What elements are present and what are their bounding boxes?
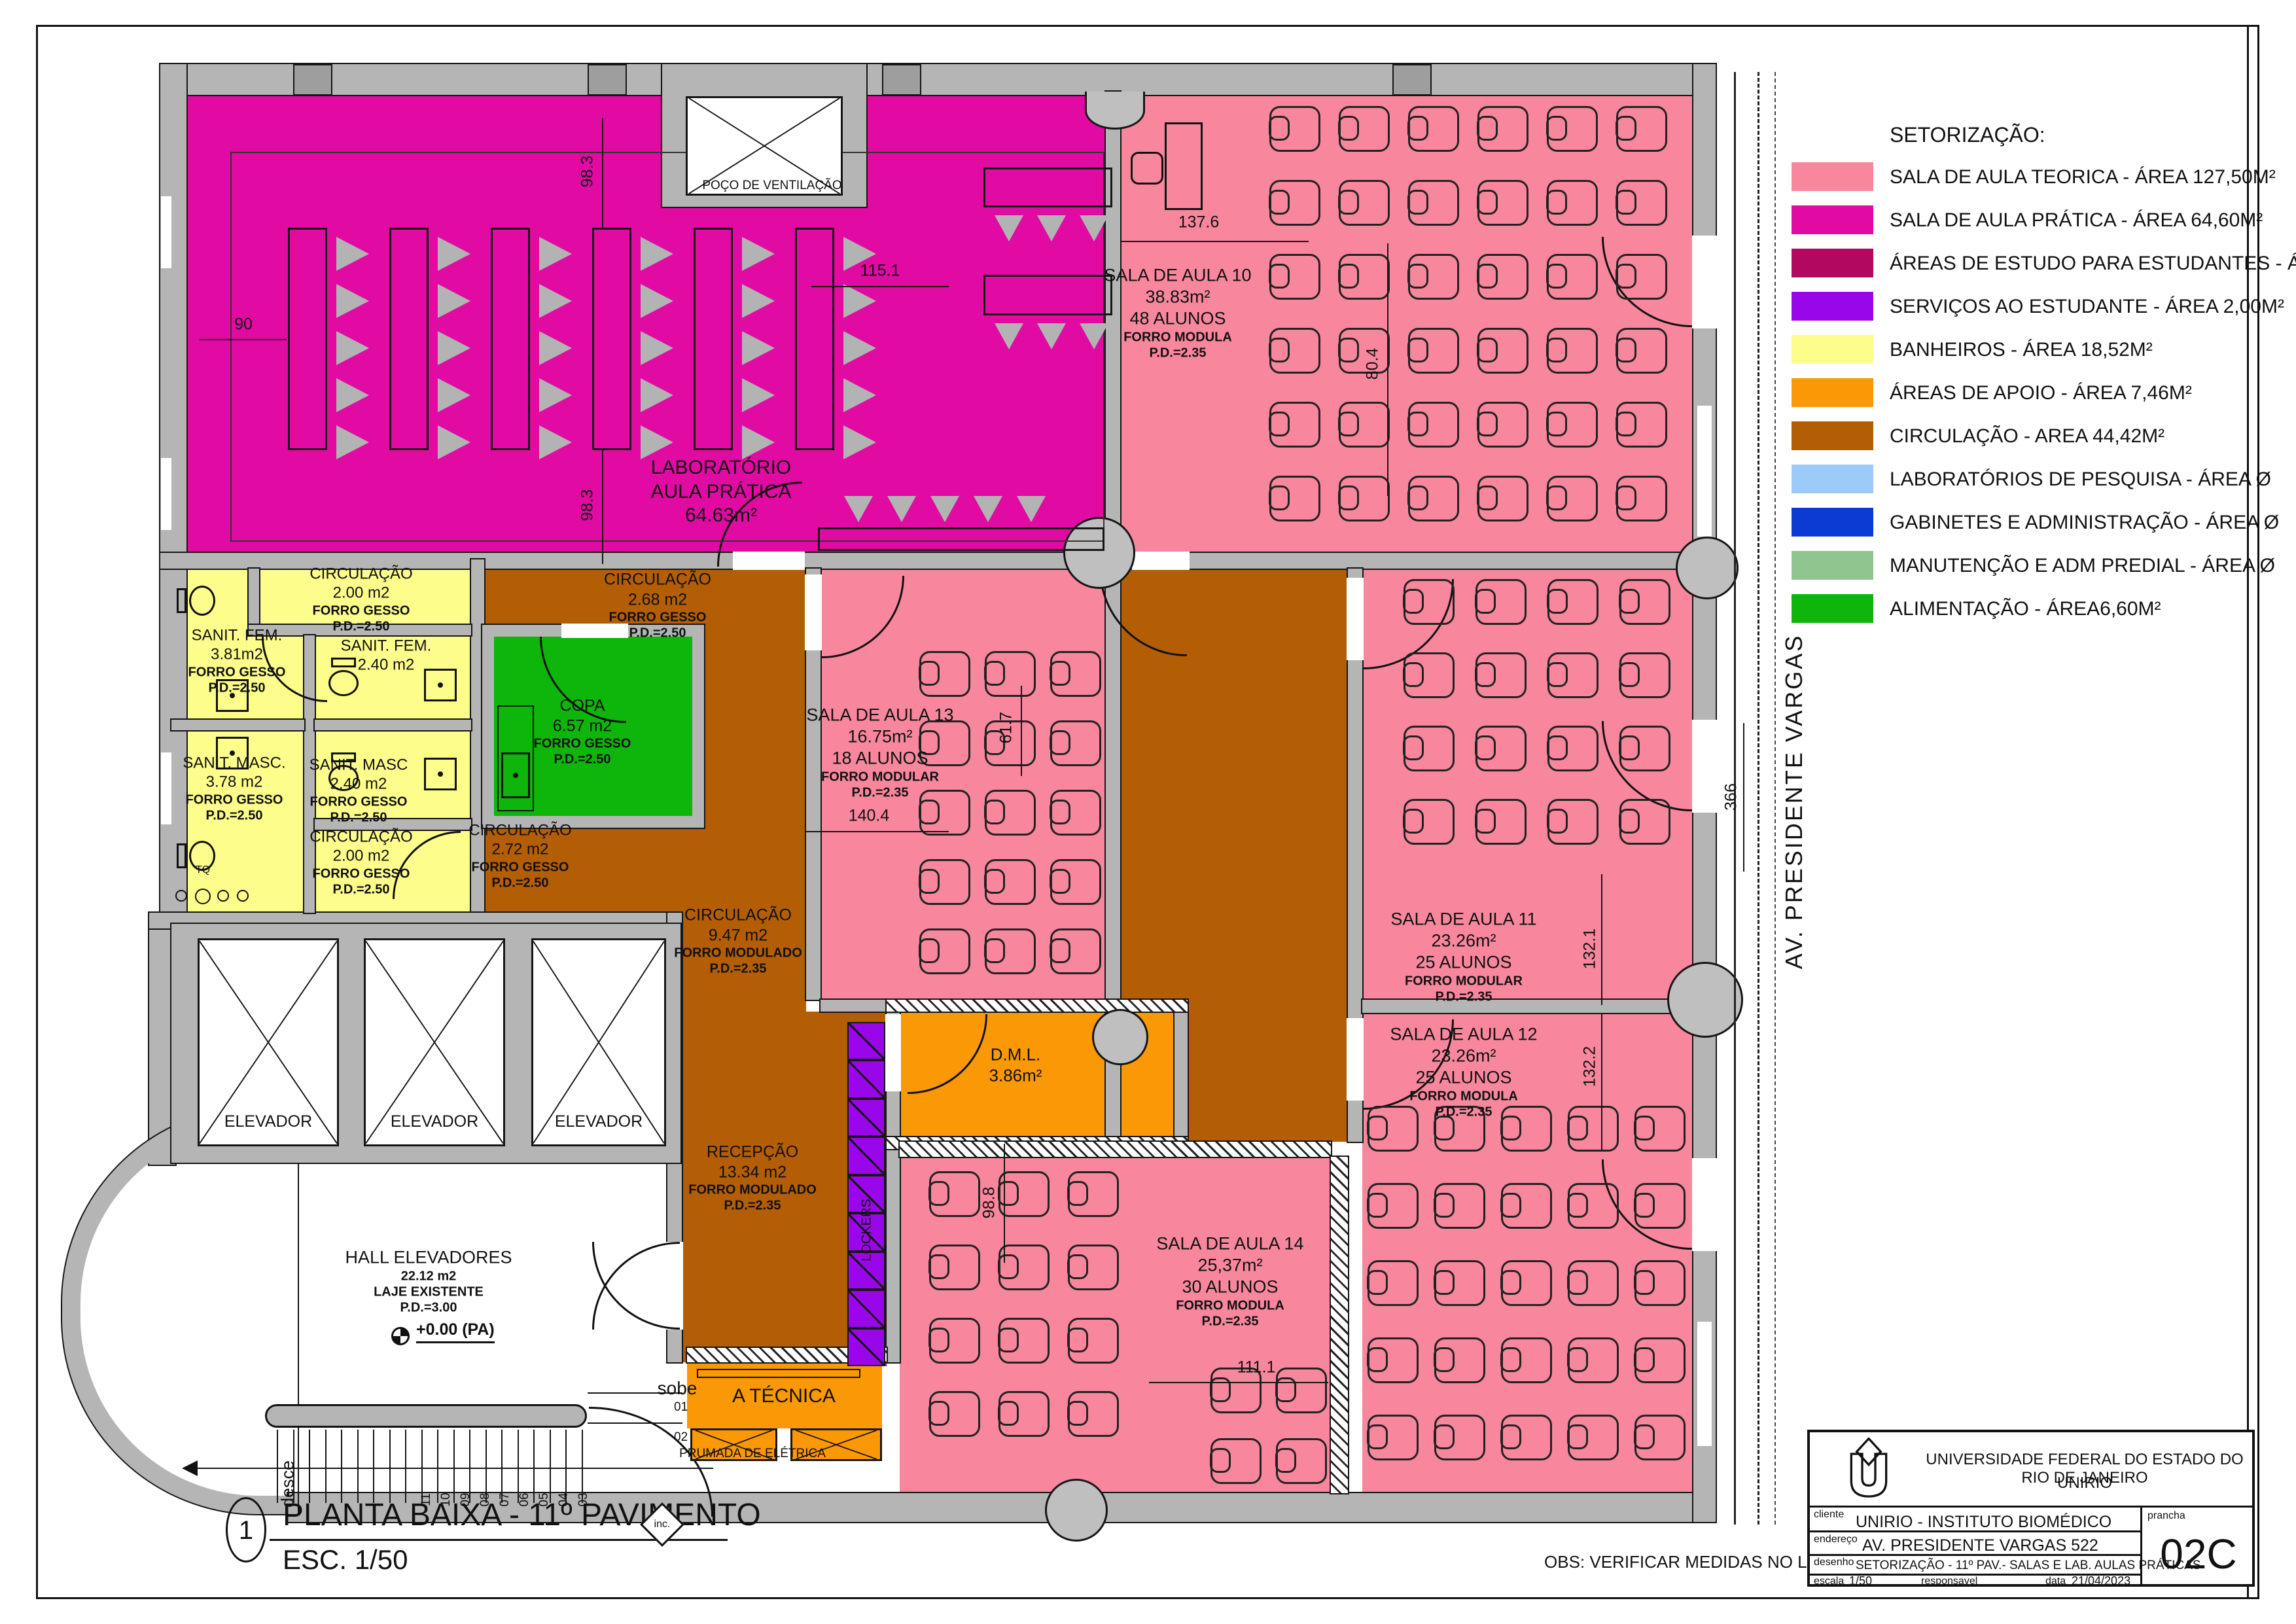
chair-seat bbox=[1338, 264, 1359, 289]
room-label-subline: P.D.=2.35 bbox=[674, 961, 802, 977]
room-label-subline: 22.12 m2 bbox=[345, 1268, 512, 1284]
stool-triangle bbox=[539, 237, 572, 271]
level-label: +0.00 (PA) bbox=[416, 1320, 495, 1343]
endereco-label: endereço bbox=[1814, 1534, 1858, 1545]
chair-seat bbox=[1477, 190, 1498, 215]
room-label-subline: FORRO MODULA bbox=[1390, 1088, 1537, 1104]
chair-seat bbox=[1367, 1347, 1388, 1372]
room-label-subline: FORRO GESSO bbox=[468, 859, 571, 875]
sala10-chairs bbox=[1477, 106, 1528, 152]
chair-seat bbox=[1567, 1116, 1588, 1140]
door-gap-dml bbox=[885, 1014, 901, 1091]
chair-seat bbox=[1546, 264, 1567, 289]
room-label-line: RECEPÇÃO bbox=[688, 1142, 817, 1163]
chair-seat bbox=[1403, 662, 1424, 687]
chair-seat bbox=[1338, 116, 1359, 141]
sala12-chairs bbox=[1501, 1183, 1552, 1229]
legend: SETORIZAÇÃO: SALA DE AULA TEORICA - ÁREA… bbox=[1792, 118, 2250, 661]
left-window bbox=[161, 458, 171, 530]
door-gap-sala13 bbox=[805, 574, 822, 650]
column-block bbox=[294, 65, 331, 94]
stool-triangle bbox=[1080, 215, 1108, 241]
poco-label: POÇO DE VENTILAÇÃO bbox=[702, 179, 841, 193]
room-label-line: CIRCULAÇÃO bbox=[468, 821, 571, 840]
sala12-chairs bbox=[1501, 1260, 1552, 1306]
legend-swatch bbox=[1792, 508, 1873, 537]
locker-box bbox=[847, 1290, 885, 1328]
sala10-chairs bbox=[1408, 328, 1459, 374]
legend-swatch bbox=[1792, 205, 1873, 234]
sala14-chairs-a bbox=[929, 1391, 980, 1437]
dim-line bbox=[1149, 1382, 1328, 1383]
sala11-chairs bbox=[1547, 726, 1598, 771]
sala10-chairs bbox=[1547, 476, 1598, 521]
room-label-subline: FORRO MODULADO bbox=[674, 945, 802, 961]
stool-triangle bbox=[742, 425, 775, 459]
stair-step-number: 02 bbox=[674, 1430, 688, 1445]
elevator-label: ELEVADOR bbox=[364, 1112, 505, 1131]
room-label-sala12: SALA DE AULA 1223.26m²25 ALUNOSFORRO MOD… bbox=[1390, 1024, 1537, 1120]
room-label-circ947: CIRCULAÇÃO9.47 m2FORRO MODULADOP.D.=2.35 bbox=[674, 906, 802, 977]
chair-seat bbox=[1616, 412, 1636, 436]
chair-seat bbox=[928, 1401, 949, 1426]
stair-tread bbox=[373, 1430, 374, 1503]
stool-triangle bbox=[844, 496, 873, 522]
room-label-subline: FORRO GESSO bbox=[309, 603, 412, 618]
room-label-hall: HALL ELEVADORES22.12 m2LAJE EXISTENTEP.D… bbox=[345, 1247, 512, 1316]
room-label-subline: P.D.=2.50 bbox=[188, 680, 286, 696]
sala12-chairs bbox=[1368, 1260, 1419, 1306]
chair-seat bbox=[1269, 338, 1290, 362]
dim-line bbox=[200, 339, 287, 340]
sala14-chairs-a bbox=[1068, 1171, 1119, 1217]
room-label-sala14: SALA DE AULA 1425,37m²30 ALUNOSFORRO MOD… bbox=[1156, 1233, 1303, 1330]
room-label-line: SALA DE AULA 10 bbox=[1104, 265, 1251, 287]
chair-seat bbox=[1547, 735, 1568, 760]
sala11-chairs bbox=[1404, 579, 1455, 625]
column-half-round bbox=[1085, 92, 1145, 130]
sala12-chairs bbox=[1501, 1337, 1552, 1383]
wall-dml-right bbox=[1174, 1012, 1188, 1137]
stool-triangle bbox=[843, 331, 876, 365]
room-label-line: 2.68 m2 bbox=[604, 590, 711, 610]
sala13-chairs bbox=[1050, 790, 1101, 836]
escala-label: escala bbox=[1814, 1576, 1844, 1587]
stair-tread bbox=[518, 1430, 519, 1503]
room-label-atecnica: A TÉCNICA bbox=[732, 1385, 836, 1407]
stair-step-number: 01 bbox=[674, 1400, 688, 1415]
chair-seat bbox=[1407, 116, 1428, 141]
legend-label: SERVIÇOS AO ESTUDANTE - ÁREA 2,00M² bbox=[1890, 296, 2284, 318]
chair-seat bbox=[1477, 412, 1498, 436]
legend-swatch bbox=[1792, 594, 1873, 623]
sala12-chairs bbox=[1434, 1260, 1485, 1306]
room-label-line: SANIT. MASC bbox=[309, 756, 408, 775]
room-label-line: 9.47 m2 bbox=[674, 925, 802, 945]
wall-below-sala10 bbox=[1120, 553, 1693, 569]
stair-tread bbox=[405, 1430, 406, 1503]
chair-seat bbox=[1475, 735, 1496, 760]
room-label-subline: P.D.=2.50 bbox=[468, 875, 571, 891]
shape bbox=[1857, 1439, 1881, 1465]
chair-seat bbox=[1367, 1193, 1388, 1218]
chair-seat bbox=[1367, 1270, 1388, 1295]
chair-seat bbox=[1567, 1424, 1588, 1449]
wall-balcony-curve bbox=[62, 1107, 298, 1514]
chair-seat bbox=[928, 1328, 949, 1352]
sala10-chairs bbox=[1547, 180, 1598, 226]
chair-seat bbox=[1067, 1181, 1088, 1206]
legend-label: SALA DE AULA PRÁTICA - ÁREA 64,60M² bbox=[1890, 209, 2263, 232]
room-label-line: CIRCULAÇÃO bbox=[674, 906, 802, 926]
stair-tread bbox=[421, 1430, 423, 1503]
sala10-chairs bbox=[1547, 402, 1598, 448]
chair-seat bbox=[1500, 1424, 1521, 1449]
chair-seat bbox=[1477, 485, 1498, 510]
stool-triangle bbox=[641, 425, 673, 459]
room-label-dml: D.M.L.3.86m² bbox=[989, 1044, 1042, 1086]
elevator-label: ELEVADOR bbox=[531, 1112, 666, 1131]
drain-circle bbox=[195, 889, 211, 904]
stair-tread bbox=[325, 1430, 327, 1503]
room-label-subline: P.D.=2.35 bbox=[688, 1198, 817, 1214]
sala10-chairs bbox=[1339, 106, 1390, 152]
legend-label: ALIMENTAÇÃO - ÁREA6,60M² bbox=[1890, 598, 2161, 620]
sala14-chairs-a bbox=[998, 1171, 1050, 1217]
chair-seat bbox=[1619, 735, 1640, 760]
facade-door-sala10 bbox=[1692, 236, 1717, 328]
chair-seat bbox=[1050, 938, 1070, 963]
chair-seat bbox=[919, 661, 940, 686]
prancha-label: prancha bbox=[2147, 1510, 2185, 1522]
sala10-chairs bbox=[1339, 180, 1390, 226]
sala10-chairs bbox=[1339, 254, 1390, 300]
room-label-line: HALL ELEVADORES bbox=[345, 1247, 512, 1269]
locker-box bbox=[847, 1137, 885, 1174]
escala-value: 1/50 bbox=[1849, 1574, 1872, 1588]
shape bbox=[177, 843, 186, 868]
dim-label: 80.4 bbox=[1364, 348, 1383, 380]
sala14-chairs-b bbox=[1276, 1438, 1327, 1484]
chair-seat bbox=[1634, 1270, 1655, 1295]
stool-triangle bbox=[843, 425, 876, 459]
sala11-chairs bbox=[1619, 726, 1670, 771]
stool-triangle bbox=[438, 331, 470, 365]
chair-seat bbox=[984, 800, 1005, 824]
room-label-sanitfem1: SANIT. FEM.3.81m2FORRO GESSOP.D.=2.50 bbox=[188, 626, 286, 696]
sala14-chairs-a bbox=[998, 1318, 1050, 1364]
shape bbox=[1829, 1438, 1908, 1503]
room-label-sala13: SALA DE AULA 1316.75m²18 ALUNOSFORRO MOD… bbox=[806, 705, 953, 801]
chair-seat bbox=[1407, 485, 1428, 510]
street-line-dash-1 bbox=[1757, 72, 1759, 1525]
column-block bbox=[1394, 65, 1430, 94]
locker-box bbox=[847, 1099, 885, 1137]
sala12-chairs bbox=[1568, 1183, 1619, 1229]
chair-seat bbox=[1050, 661, 1070, 686]
stool-triangle bbox=[539, 331, 572, 365]
room-label-line: 3.86m² bbox=[989, 1065, 1042, 1086]
sala10-chairs bbox=[1477, 328, 1528, 374]
dim-label: 132.2 bbox=[1581, 1046, 1600, 1087]
drain-circle bbox=[237, 890, 249, 902]
sala10-chairs bbox=[1339, 402, 1390, 448]
dim-label: 111.1 bbox=[1237, 1358, 1276, 1377]
room-label-line: SALA DE AULA 14 bbox=[1156, 1233, 1303, 1255]
room-label-circ200b: CIRCULAÇÃO2.00 m2FORRO GESSOP.D.=2.50 bbox=[309, 828, 412, 898]
column-circle bbox=[1092, 1009, 1148, 1065]
chair-seat bbox=[1338, 190, 1359, 215]
chair-seat bbox=[1050, 730, 1070, 755]
lab-bench bbox=[288, 228, 327, 450]
room-label-copa: COPA6.57 m2FORRO GESSOP.D.=2.50 bbox=[534, 696, 631, 768]
chair-seat bbox=[1634, 1116, 1655, 1140]
chair-seat bbox=[1275, 1377, 1296, 1402]
stool-triangle bbox=[438, 378, 470, 412]
sala12-chairs bbox=[1568, 1415, 1619, 1460]
room-label-sanitmasc2: SANIT. MASC2.40 m2FORRO GESSOP.D.=2.50 bbox=[309, 756, 408, 826]
dim-label: 98.3 bbox=[578, 489, 597, 521]
room-label-line: SALA DE AULA 11 bbox=[1390, 909, 1536, 930]
chair-seat bbox=[984, 661, 1005, 686]
sala11-chairs bbox=[1619, 652, 1670, 698]
sala11-chairs bbox=[1404, 799, 1455, 845]
stool-triangle bbox=[336, 425, 369, 459]
sala12-chairs bbox=[1434, 1337, 1485, 1383]
dim-line bbox=[1122, 241, 1309, 242]
room-label-subline: FORRO GESSO bbox=[183, 792, 285, 807]
legend-label: GABINETES E ADMINISTRAÇÃO - ÁREA Ø bbox=[1890, 512, 2279, 534]
stool-triangle bbox=[641, 378, 673, 412]
sala11-chairs bbox=[1547, 799, 1598, 845]
room-label-subline: P.D.=2.50 bbox=[309, 881, 412, 897]
sala13-chairs bbox=[919, 859, 970, 905]
chair-seat bbox=[1434, 1193, 1455, 1218]
legend-label: MANUTENÇÃO E ADM PREDIAL - ÁREA Ø bbox=[1890, 555, 2275, 577]
stair-tread bbox=[357, 1430, 359, 1503]
sala10-chairs bbox=[1269, 254, 1320, 300]
room-label-subline: P.D.=2.35 bbox=[806, 785, 953, 800]
sala11-chairs bbox=[1475, 799, 1527, 845]
chair-seat bbox=[998, 1328, 1019, 1352]
teacher-desk bbox=[1165, 122, 1203, 210]
stool-triangle bbox=[539, 425, 572, 459]
chair-seat bbox=[1338, 412, 1359, 436]
room-label-line: D.M.L. bbox=[989, 1044, 1042, 1065]
chair-seat bbox=[1547, 589, 1568, 614]
chair-seat bbox=[1067, 1328, 1088, 1352]
sala13-chairs bbox=[1050, 651, 1101, 697]
data-label: data bbox=[2045, 1576, 2066, 1587]
room-label-line: 3.78 m2 bbox=[183, 773, 285, 792]
column-circle bbox=[1667, 962, 1743, 1038]
sala13-chairs bbox=[985, 790, 1036, 836]
chair-seat bbox=[1434, 1270, 1455, 1295]
room-label-subline: P.D.=2.35 bbox=[1104, 345, 1251, 361]
room-label-subline: FORRO MODULAR bbox=[806, 769, 953, 785]
legend-label: ÁREAS DE ESTUDO PARA ESTUDANTES - ÁREA Ø bbox=[1890, 253, 2296, 275]
title-block: UNIVERSIDADE FEDERAL DO ESTADO DO RIO DE… bbox=[1807, 1430, 2255, 1587]
sala13-chairs bbox=[1050, 928, 1101, 974]
dim-line bbox=[1021, 686, 1022, 776]
sala12-chairs bbox=[1568, 1260, 1619, 1306]
street-name: AV. PRESIDENTE VARGAS bbox=[1780, 634, 1808, 969]
sala10-chairs bbox=[1616, 402, 1667, 448]
room-label-sala11: SALA DE AULA 1123.26m²25 ALUNOSFORRO MOD… bbox=[1390, 909, 1536, 1005]
stair-number: 10 bbox=[439, 1492, 453, 1506]
stool-triangle bbox=[438, 284, 470, 318]
sala10-chairs bbox=[1477, 180, 1528, 226]
stair-walkline bbox=[196, 1468, 713, 1469]
room-label-subline: P.D.=2.50 bbox=[604, 626, 711, 641]
chair-seat bbox=[928, 1254, 949, 1279]
sala13-chairs bbox=[1050, 859, 1101, 905]
room-label-circ272: CIRCULAÇÃO2.72 m2FORRO GESSOP.D.=2.50 bbox=[468, 821, 571, 891]
chair-seat bbox=[1619, 589, 1640, 614]
room-label-line: 2.40 m2 bbox=[309, 775, 408, 794]
stool-triangle bbox=[539, 284, 572, 318]
sala14-chairs-b bbox=[1276, 1368, 1327, 1413]
drain-circle bbox=[175, 890, 187, 902]
room-label-subline: LAJE EXISTENTE bbox=[345, 1284, 512, 1299]
legend-label: BANHEIROS - ÁREA 18,52M² bbox=[1890, 339, 2153, 361]
chair-seat bbox=[1500, 1270, 1521, 1295]
legend-rows: SALA DE AULA TEORICA - ÁREA 127,50M²SALA… bbox=[1792, 118, 2250, 661]
wall-top bbox=[160, 64, 1716, 95]
wall-bath-v1 bbox=[249, 569, 259, 634]
stair-tread bbox=[341, 1430, 342, 1503]
legend-swatch bbox=[1792, 421, 1873, 450]
stool-triangle bbox=[641, 284, 673, 318]
chair-seat bbox=[1367, 1424, 1388, 1449]
titleblock-prancha-cell: prancha 02C bbox=[2142, 1506, 2255, 1585]
sala14-chairs-a bbox=[1068, 1244, 1119, 1290]
sala14-chairs-a bbox=[998, 1391, 1050, 1437]
left-window bbox=[161, 752, 171, 824]
facade-door-sala12 bbox=[1692, 1158, 1717, 1251]
lab-bench bbox=[983, 168, 1112, 207]
room-label-line: SANIT. FEM. bbox=[188, 626, 286, 645]
room-label-line: 25,37m² bbox=[1156, 1255, 1303, 1277]
room-label-subline: FORRO GESSO bbox=[604, 610, 711, 626]
room-label-subline: FORRO GESSO bbox=[188, 664, 286, 680]
plan-title-mark: 1 bbox=[226, 1497, 266, 1562]
sala11-chairs bbox=[1404, 726, 1455, 771]
chair-seat bbox=[1269, 412, 1290, 436]
room-label-line: 23.26m² bbox=[1390, 930, 1536, 952]
chair-seat bbox=[1475, 809, 1496, 834]
room-label-subline: FORRO MODULAR bbox=[1390, 973, 1536, 989]
stool-triangle bbox=[742, 237, 775, 271]
chair-seat bbox=[1547, 662, 1568, 687]
lockers-label: LOCKERS bbox=[860, 1199, 875, 1262]
stool-triangle bbox=[930, 496, 959, 522]
stool-triangle bbox=[742, 331, 775, 365]
room-label-sanitmasc1: SANIT. MASC.3.78 m2FORRO GESSOP.D.=2.50 bbox=[183, 754, 285, 824]
chair-seat bbox=[1403, 735, 1424, 760]
stair-number: 03 bbox=[576, 1492, 591, 1506]
locker-box bbox=[847, 1328, 885, 1366]
legend-label: SALA DE AULA TEORICA - ÁREA 127,50M² bbox=[1890, 166, 2276, 188]
chair-seat bbox=[1407, 338, 1428, 362]
sala14-chairs-a bbox=[929, 1244, 980, 1290]
legend-swatch bbox=[1792, 292, 1873, 321]
sala10-chairs bbox=[1616, 476, 1667, 521]
data-value: 21/04/2023 bbox=[2072, 1574, 2130, 1588]
room-label-line: SANIT. FEM. bbox=[341, 637, 432, 656]
dim-line bbox=[1004, 1144, 1005, 1263]
room-label-subline: P.D.=3.00 bbox=[345, 1299, 512, 1315]
stool-triangle bbox=[336, 331, 369, 365]
dim-line bbox=[811, 286, 949, 287]
sala11-chairs bbox=[1547, 652, 1598, 698]
legend-label: ÁREAS DE APOIO - ÁREA 7,46M² bbox=[1890, 382, 2192, 404]
sala14-chairs-a bbox=[1068, 1318, 1119, 1364]
sala11-chairs bbox=[1475, 726, 1527, 771]
room-label-line: 64.63m² bbox=[650, 504, 791, 528]
sala13-chairs bbox=[985, 928, 1036, 974]
stool-triangle bbox=[1037, 323, 1066, 349]
stair-tread bbox=[389, 1430, 391, 1503]
chair-seat bbox=[984, 869, 1005, 894]
stool-triangle bbox=[843, 378, 876, 412]
sala12-chairs bbox=[1634, 1183, 1686, 1229]
chair-seat bbox=[1269, 485, 1290, 510]
stair-number: 06 bbox=[518, 1492, 532, 1506]
dim-label: 137.6 bbox=[1178, 213, 1220, 232]
wall-bath-h3 bbox=[315, 720, 471, 730]
legend-swatch bbox=[1792, 335, 1873, 364]
legend-label: LABORATÓRIOS DE PESQUISA - ÁREA Ø bbox=[1890, 468, 2271, 491]
dim-label: 115.1 bbox=[860, 262, 900, 281]
chair-seat bbox=[919, 869, 940, 894]
stool-triangle bbox=[438, 425, 470, 459]
chair-seat bbox=[1634, 1193, 1655, 1218]
sala11-chairs bbox=[1404, 652, 1455, 698]
sala12-chairs bbox=[1568, 1106, 1619, 1152]
room-label-subline: P.D.=2.50 bbox=[183, 807, 285, 823]
stool-triangle bbox=[995, 215, 1023, 241]
wall-sala14-top-hatch bbox=[900, 1142, 1331, 1157]
stool-triangle bbox=[1037, 215, 1066, 241]
responsavel-label: responsavel bbox=[1921, 1576, 1977, 1587]
titleblock-university-short: UNIRIO bbox=[1915, 1474, 2255, 1492]
room-label-line: 2.00 m2 bbox=[309, 847, 412, 866]
room-label-line: LABORATÓRIO bbox=[650, 456, 791, 480]
room-label-sala10: SALA DE AULA 1038.83m²48 ALUNOSFORRO MOD… bbox=[1104, 265, 1251, 361]
room-label-line: AULA PRÁTICA bbox=[650, 480, 791, 504]
facade-window bbox=[1697, 406, 1712, 537]
sala10-chairs bbox=[1616, 254, 1667, 300]
sala11-chairs bbox=[1619, 579, 1670, 625]
sala13-chairs bbox=[1050, 720, 1101, 766]
dim-line bbox=[806, 831, 949, 832]
chair-seat bbox=[1567, 1270, 1588, 1295]
room-label-line: SALA DE AULA 13 bbox=[806, 705, 953, 726]
chair-seat bbox=[1434, 1347, 1455, 1372]
stair-tread bbox=[565, 1430, 567, 1503]
chair-seat bbox=[1616, 485, 1636, 510]
sala13-chairs bbox=[919, 651, 970, 697]
sala10-chairs bbox=[1616, 328, 1667, 374]
stool-triangle bbox=[641, 331, 673, 365]
stool-triangle bbox=[843, 284, 876, 318]
chair-seat bbox=[1619, 662, 1640, 687]
legend-label: CIRCULAÇÃO - AREA 44,42M² bbox=[1890, 425, 2164, 448]
stair-number: 09 bbox=[459, 1492, 473, 1506]
legend-swatch bbox=[1792, 551, 1873, 580]
sala12-chairs bbox=[1368, 1183, 1419, 1229]
